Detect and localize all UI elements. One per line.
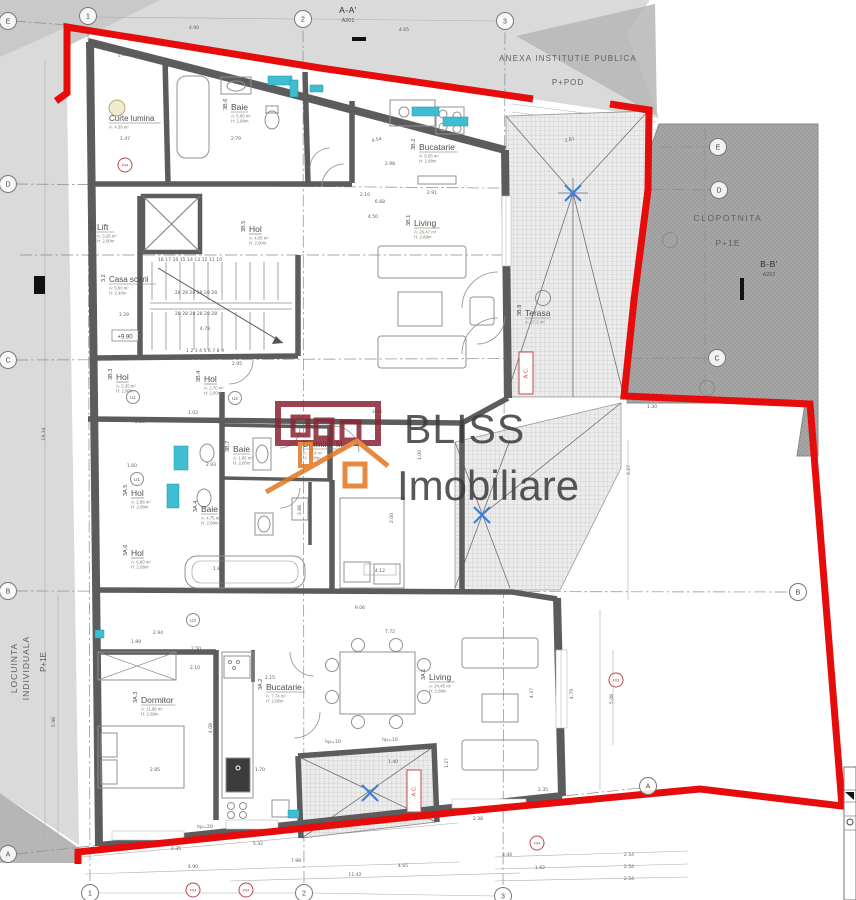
toilet-tank	[266, 106, 278, 113]
room-name: Bucatarie	[419, 142, 455, 152]
room-name: Living	[429, 672, 451, 682]
lift-shaft-cross	[143, 196, 200, 252]
door-marker-label: U2	[232, 396, 238, 401]
dining-table	[340, 652, 415, 714]
room-height: H: 2,88m	[429, 689, 447, 694]
room-id: 3A.2	[258, 679, 264, 690]
room-name: Hol	[131, 488, 144, 498]
burner-icon	[228, 812, 235, 819]
section-cut-bar	[740, 278, 744, 300]
logo-text-line2: Imobiliare	[397, 462, 579, 509]
burner-icon	[240, 803, 247, 810]
ac-label: A.C.	[524, 367, 530, 378]
context-label: P+1E	[39, 652, 48, 672]
kitchen-sink-bowl	[399, 107, 409, 117]
dimension-text: 2.35	[171, 846, 181, 852]
dimension-text: 2.15	[265, 675, 275, 681]
room-id: 3B.5	[241, 221, 247, 232]
grid-marker-label: A	[646, 784, 651, 791]
dimension-text: 2.10	[135, 419, 145, 425]
dimension-text: 1.89	[131, 639, 141, 645]
room-area: A: 27,2 m²	[525, 320, 545, 325]
dimension-text: 4.54	[371, 136, 382, 144]
floor-plan-canvas: 4.904.651.512.791.474.542.982.106.682.91…	[0, 0, 856, 900]
window-marker	[443, 117, 468, 126]
dimension-text: 1 2 3 4 5 6 7 8 9	[186, 348, 224, 354]
section-label: A-A'	[339, 5, 357, 15]
grid-marker-label: D	[5, 182, 10, 189]
section-cut-bar	[352, 37, 366, 41]
sofa	[378, 246, 466, 278]
dimension-text: 1.47	[120, 136, 130, 142]
sofa	[462, 638, 538, 668]
dimension-text: 4.50	[368, 214, 378, 220]
dimension-text: 4.79	[569, 689, 575, 699]
room-id: 3A.4	[193, 501, 199, 512]
dimension-text: 3.88	[297, 505, 303, 515]
dimension-text: 1.60	[127, 463, 137, 469]
room-name: Living	[414, 218, 436, 228]
chair	[390, 639, 403, 652]
context-label: INDIVIDUALA	[21, 636, 31, 700]
room-name: Hol	[116, 372, 129, 382]
ref-marker-label: F04	[190, 888, 198, 893]
window	[226, 820, 278, 829]
context-label: P+1E	[715, 238, 740, 248]
dimension-text: 1.27	[444, 758, 450, 768]
room-height: H: 2,80m	[116, 389, 134, 394]
dimension-text: 2.93	[206, 462, 216, 468]
section-label: B-B'	[760, 259, 778, 269]
sofa	[378, 336, 466, 368]
dimension-text: hp=10	[325, 739, 341, 745]
bed	[340, 498, 404, 588]
room-id: 3A.5	[123, 485, 129, 496]
dimension-text: 4.37	[529, 688, 535, 698]
dimension-text: 19.34	[41, 427, 47, 440]
window-marker	[95, 630, 104, 638]
room-id: 3B.6	[223, 99, 229, 110]
room-id: 3B.2	[411, 139, 417, 150]
room-height: H: 2,80m	[97, 239, 115, 244]
dimension-text: 2.38	[473, 816, 483, 822]
sofa	[462, 740, 538, 770]
logo-text-line1: BLISS	[404, 406, 525, 452]
washer-marker	[174, 446, 188, 470]
dimension-text: 2.10	[360, 192, 370, 198]
grid-marker-label: C	[5, 358, 10, 365]
room-height: H: 2,88m	[414, 235, 432, 240]
faucet-dot-icon	[237, 661, 240, 664]
ref-marker-label: F04	[534, 841, 542, 846]
pillow	[101, 760, 117, 784]
context-label: P+POD	[552, 78, 584, 87]
bathtub	[177, 76, 209, 158]
room-name: Lift	[97, 222, 109, 232]
chair	[326, 659, 339, 672]
washer-marker	[167, 484, 179, 508]
room-name: Dormitor	[141, 695, 174, 705]
toilet	[265, 111, 279, 129]
coffee-table	[482, 694, 518, 722]
stove-dark	[226, 758, 250, 792]
room-area: A: 4,39 m²	[109, 125, 129, 130]
grid-marker-label: 3	[503, 19, 507, 26]
dimension-text: 3.44	[502, 852, 512, 858]
room-height: H: 2,80m	[249, 241, 267, 246]
window	[556, 650, 567, 728]
room-id: 3B.1	[406, 215, 412, 226]
faucet-dot-icon	[229, 661, 232, 664]
room-id: 3B.4	[196, 371, 202, 382]
section-sub: A201	[342, 18, 355, 24]
pillow	[101, 733, 117, 757]
bathtub-inner	[192, 561, 298, 583]
window	[502, 196, 511, 266]
dimension-text: 2.85	[150, 767, 160, 773]
room-name: Curte lumina	[109, 114, 155, 123]
coffee-table	[398, 292, 442, 326]
chair	[326, 691, 339, 704]
room-name: Baie	[233, 444, 250, 454]
dimension-text: 5.08	[609, 694, 615, 704]
room-height: H: 2,80m	[233, 461, 251, 466]
room-name: Bucatarie	[266, 682, 302, 692]
dimension-text: 28 28 28 28 28 28	[175, 290, 217, 296]
window-marker	[268, 76, 292, 85]
dimension-text: 2.50	[191, 646, 201, 652]
room-height: H: 2,40m	[109, 291, 127, 296]
dimension-text: 2.00	[389, 513, 395, 523]
dimension-text: 4.90	[189, 25, 199, 31]
dimension-text: 2.79	[231, 136, 241, 142]
room-height: H: 2,88m	[201, 521, 219, 526]
grid-marker-label: 2	[301, 17, 305, 24]
room-id: 3A.3	[133, 692, 139, 703]
dimension-text: 28 28 28 28 28 28	[175, 311, 217, 317]
dimension-text: 4.08	[208, 723, 214, 733]
dimension-text: 1.70	[255, 767, 265, 773]
dimension-text: 1.29	[119, 312, 129, 318]
pillow	[344, 562, 370, 582]
logo-door-icon	[345, 464, 365, 486]
title-block-fragment	[844, 767, 856, 900]
room-height: H: 2,88m	[231, 119, 249, 124]
context-label: ANEXA INSTITUTIE PUBLICA	[499, 54, 637, 63]
burner-icon	[240, 812, 247, 819]
dimension-text: hp=10	[382, 737, 398, 743]
dimension-text: 4.12	[375, 568, 385, 574]
dimension-text: 18 17 16 15 14 13 12 11 10	[158, 257, 222, 263]
dimension-text: 2.91	[427, 190, 437, 196]
grid-marker-label: D	[716, 188, 721, 195]
dimension-text: 2.95	[232, 361, 242, 367]
door-marker-label: U3	[190, 618, 196, 623]
dimension-text: 7.98	[291, 858, 301, 864]
room-height: H: 2,88m	[266, 699, 284, 704]
room-id: 3.2	[101, 274, 107, 282]
context-label: CLOPOTNITA	[694, 213, 763, 223]
section-sub: A202	[763, 272, 776, 278]
grid-marker-label: 2	[302, 891, 306, 898]
wardrobe-cross	[98, 652, 176, 680]
dimension-text: 2.98	[385, 161, 395, 167]
room-name: Baie	[231, 102, 248, 112]
grid-marker-label: A	[6, 852, 11, 859]
window-marker	[290, 80, 298, 97]
level-marker: +9.90	[117, 335, 133, 341]
window-marker	[310, 85, 323, 92]
dimension-text: 5.98	[51, 717, 57, 727]
room-height: H: 2,88m	[419, 159, 437, 164]
dimension-text: 1.02	[188, 410, 198, 416]
dimension-text: hp=20	[197, 824, 213, 830]
room-id: 3.1	[89, 222, 95, 230]
room-name: Casa scarii	[109, 275, 149, 284]
dimension-text: 2.35	[538, 787, 548, 793]
dimension-text: 2.10	[190, 665, 200, 671]
dimension-text: 2.54	[624, 864, 634, 870]
ref-marker-label: F04	[122, 163, 130, 168]
ref-marker-label: F04	[243, 888, 251, 893]
burner-icon	[228, 803, 235, 810]
room-height: H: 2,88m	[131, 505, 149, 510]
armchair	[470, 297, 494, 325]
kitchen-cabinet	[418, 176, 456, 184]
room-name: Hol	[131, 548, 144, 558]
grid-marker-label: B	[796, 590, 801, 597]
door-marker-label: U1	[134, 477, 140, 482]
chair	[352, 716, 365, 729]
dimension-text: 9.06	[355, 605, 365, 611]
dimension-text: 11.42	[348, 872, 361, 878]
grid-marker-label: 1	[88, 891, 92, 898]
dimension-text: 3.27	[626, 465, 632, 475]
neighbour-strip	[0, 27, 79, 845]
grid-marker-label: E	[716, 145, 721, 152]
utility-box	[272, 800, 289, 817]
dimension-text: 2.94	[153, 630, 163, 636]
window-marker	[288, 810, 299, 818]
ref-marker-label: F03	[613, 678, 620, 683]
dimension-text: 1.40	[388, 759, 398, 765]
toilet	[200, 444, 214, 462]
door-marker-label: U1	[130, 395, 136, 400]
dimension-text: 4.90	[188, 864, 198, 870]
logo-window-icon	[342, 422, 359, 440]
sink-basin	[256, 445, 268, 463]
dimension-text: 4.78	[200, 326, 210, 332]
faucet-dot-icon	[233, 667, 236, 670]
dimension-text: 2.54	[624, 852, 634, 858]
room-id: 3A.6	[123, 545, 129, 556]
room-height: H: 2,88m	[141, 712, 159, 717]
room-id: 3B.7	[225, 441, 231, 452]
dimension-text: 1.62	[535, 865, 545, 871]
room-name: Hol	[249, 224, 262, 234]
room-height: H: 2,88m	[131, 565, 149, 570]
kitchen-sink	[224, 656, 250, 678]
title-block-frame	[844, 767, 856, 900]
floor-plan-page: 4.904.651.512.791.474.542.982.106.682.91…	[0, 0, 856, 900]
sink-basin	[258, 516, 270, 532]
dimension-text: 4.65	[399, 27, 409, 33]
context-label: LOCUINTA	[9, 643, 19, 693]
dimension-text: 6.68	[375, 199, 385, 205]
dimension-text: 5.32	[253, 841, 263, 847]
grid-marker-label: 1	[86, 14, 90, 21]
grid-marker-label: C	[714, 356, 719, 363]
room-name: Terasa	[525, 308, 551, 318]
ac-label: A.C.	[412, 785, 418, 796]
window-marker	[412, 107, 439, 116]
dimension-text: 1.80	[213, 566, 223, 572]
dimension-text: 7.72	[385, 629, 395, 635]
grid-marker-label: 3	[501, 894, 505, 900]
section-cut-bar	[34, 276, 45, 294]
dimension-text: 1.30	[647, 404, 657, 410]
room-name: Baie	[201, 504, 218, 514]
dimension-text: 2.54	[624, 876, 634, 882]
room-id: 3B.8	[517, 305, 523, 316]
room-id: 3A.1	[421, 669, 427, 680]
chair	[352, 639, 365, 652]
room-height: H: 2,80m	[204, 391, 222, 396]
dimension-text: 4.65	[398, 863, 408, 869]
grid-marker-label: B	[6, 589, 11, 596]
chair	[390, 716, 403, 729]
grid-marker-label: E	[6, 19, 11, 26]
room-id: 3B.3	[108, 369, 114, 380]
room-name: Hol	[204, 374, 217, 384]
